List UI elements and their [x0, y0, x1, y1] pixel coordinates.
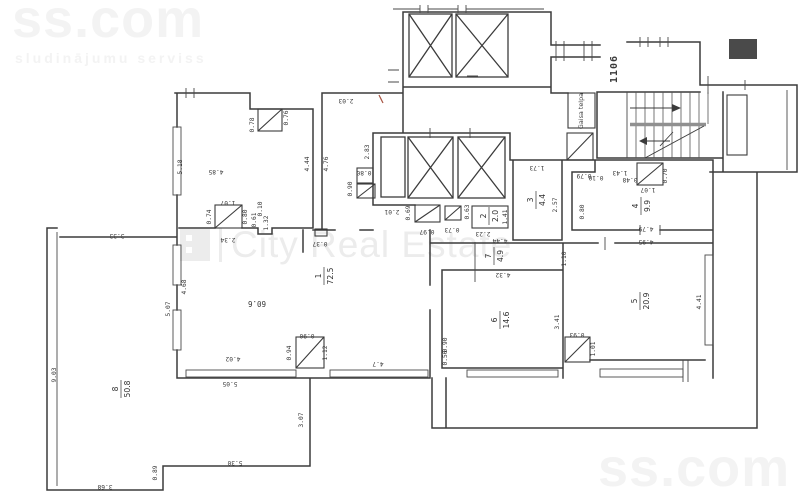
room-label: 34.4 — [526, 191, 547, 209]
shaft-ic — [445, 206, 461, 220]
arrow-left-icon — [639, 137, 647, 145]
dimension-label: 1.43 — [612, 169, 627, 176]
arrow-right-icon — [672, 104, 681, 112]
dimension-label: 1.07 — [640, 186, 655, 193]
room-number: 8 — [111, 386, 120, 391]
room-area: 50.8 — [123, 380, 132, 397]
dimension-label: 0.76 — [283, 110, 290, 125]
room-number: 6 — [490, 317, 499, 322]
room-area: 4.4 — [538, 194, 547, 206]
dimension-labels: 0.760.782.034.855.184.444.762.831.070.74… — [51, 97, 703, 490]
dimension-label: 1.12 — [322, 345, 329, 360]
dimension-label: 4.95 — [638, 238, 653, 245]
solid-shaft-block — [729, 39, 757, 59]
dimension-label: 1.73 — [529, 164, 544, 171]
room-number: 5 — [630, 298, 639, 303]
window — [173, 310, 181, 350]
dimension-label: 0.37 — [312, 240, 327, 247]
dimension-label: 5.05 — [222, 380, 237, 387]
dimension-label: 0.56 — [442, 350, 449, 365]
dimension-label: 4.44 — [304, 156, 311, 171]
room-label: 172.5 — [314, 267, 335, 285]
room-label: 850.8 — [111, 380, 132, 398]
dimension-label: 2.03 — [338, 97, 353, 104]
room-number: 7 — [484, 253, 493, 258]
elevator-shaft-icon — [456, 14, 508, 77]
window — [600, 369, 683, 377]
dimension-label: 0.90 — [442, 337, 449, 352]
dimension-label: 5.07 — [165, 301, 172, 316]
room-area: 72.5 — [326, 267, 335, 284]
duct-shaft — [727, 95, 747, 155]
dimension-label: 2.57 — [552, 197, 559, 212]
window — [186, 370, 296, 377]
dimension-label: 0.78 — [249, 117, 256, 132]
dimension-label: 3.68 — [97, 483, 112, 490]
dimension-label: 1.07 — [220, 199, 235, 206]
room-number: 3 — [526, 197, 535, 202]
staircase — [630, 92, 708, 158]
room-number: 4 — [631, 203, 640, 208]
dimension-label: 4.32 — [495, 271, 510, 278]
dimension-label: 0.80 — [579, 204, 586, 219]
dimension-label: 0.80 — [242, 209, 249, 224]
room-area: 20.9 — [642, 292, 651, 309]
elevator-shaft-icon — [409, 14, 452, 77]
dimension-label: 0.80 — [356, 169, 371, 176]
room-label: 74.9 — [484, 247, 505, 265]
room-number: 2 — [479, 213, 488, 218]
room-area: 4.9 — [496, 250, 505, 262]
dimension-label: 2.83 — [364, 144, 371, 159]
window — [173, 245, 181, 285]
air-space-label: Gaisa telpa — [577, 93, 585, 129]
dimension-label: 1.01 — [590, 341, 597, 356]
dimension-label: 5.30 — [227, 459, 242, 466]
dimension-label: 4.44 — [492, 237, 507, 244]
dimension-label: 4.76 — [323, 156, 330, 171]
dimension-label: 0.10 — [588, 174, 603, 181]
floor-plan-drawing: 1106 Gaisa telpa 60.6 172.522.034.449.95… — [0, 0, 811, 497]
dimension-label: 1.32 — [263, 215, 270, 230]
dimension-label: 0.94 — [286, 345, 293, 360]
hall-area-label: 60.6 — [247, 299, 266, 308]
walls — [47, 12, 797, 490]
dimension-label: 4.68 — [181, 279, 188, 294]
shaft-icon — [415, 205, 440, 222]
shaft-number-label: 1106 — [609, 55, 620, 83]
dimension-label: 4.7 — [372, 360, 383, 367]
dimension-label: 0.90 — [299, 332, 314, 339]
dimension-label: 0.48 — [622, 176, 637, 183]
shaft-icon — [215, 205, 242, 228]
window — [330, 370, 428, 377]
dimension-label: 1.10 — [561, 251, 568, 266]
dimension-label: 9.03 — [51, 367, 58, 382]
shaft-icon — [258, 109, 282, 131]
dimension-label: 2.23 — [475, 230, 490, 237]
duct-shaft — [381, 137, 405, 197]
room-label: 49.9 — [631, 197, 652, 215]
dimension-label: 4.41 — [696, 294, 703, 309]
dimension-label: 3.07 — [298, 412, 305, 427]
dimension-label: 0.10 — [257, 201, 264, 216]
shaft-icon — [296, 337, 324, 368]
dimension-label: 2.34 — [220, 236, 235, 243]
dimension-label: 3.41 — [554, 314, 561, 329]
dimension-label: 0.93 — [569, 331, 584, 338]
dimension-label: 0.97 — [419, 228, 434, 235]
elevator-shaft-icon — [408, 137, 453, 198]
shaft-icon — [565, 337, 590, 362]
elevator-shaft-icon — [458, 137, 505, 198]
dimension-label: 1.41 — [502, 209, 509, 224]
room-area: 9.9 — [643, 200, 652, 212]
room-area: 2.0 — [491, 210, 500, 222]
dimension-label: 4.79 — [638, 225, 653, 232]
dimension-label: 2.01 — [384, 208, 399, 215]
dimension-label: 4.85 — [208, 168, 223, 175]
red-pen-mark — [379, 95, 383, 103]
dimension-label: 0.90 — [347, 181, 354, 196]
room-area: 14.6 — [502, 311, 511, 328]
shaft-icon — [567, 133, 593, 160]
elevator-shafts — [381, 14, 508, 198]
room-label: 614.6 — [490, 311, 511, 329]
dimension-label: 0.89 — [152, 465, 159, 480]
window — [467, 370, 558, 377]
room-number: 1 — [314, 273, 323, 278]
dimension-label: 0.63 — [464, 204, 471, 219]
dimension-label: 0.70 — [662, 168, 669, 183]
floorplan-scan: ss.com sludinājumu serviss ss.com sludin… — [0, 0, 811, 497]
room-label: 22.0 — [479, 207, 500, 225]
dimension-label: 3.33 — [109, 232, 124, 239]
dimension-label: 0.69 — [405, 205, 412, 220]
dimension-label: 4.02 — [225, 355, 240, 362]
dimension-label: 0.74 — [206, 209, 213, 224]
shaft-icon — [637, 163, 663, 185]
dimension-label: 5.18 — [177, 159, 184, 174]
dimension-label: 0.73 — [444, 226, 459, 233]
room-label: 520.9 — [630, 292, 651, 310]
window — [705, 255, 713, 345]
